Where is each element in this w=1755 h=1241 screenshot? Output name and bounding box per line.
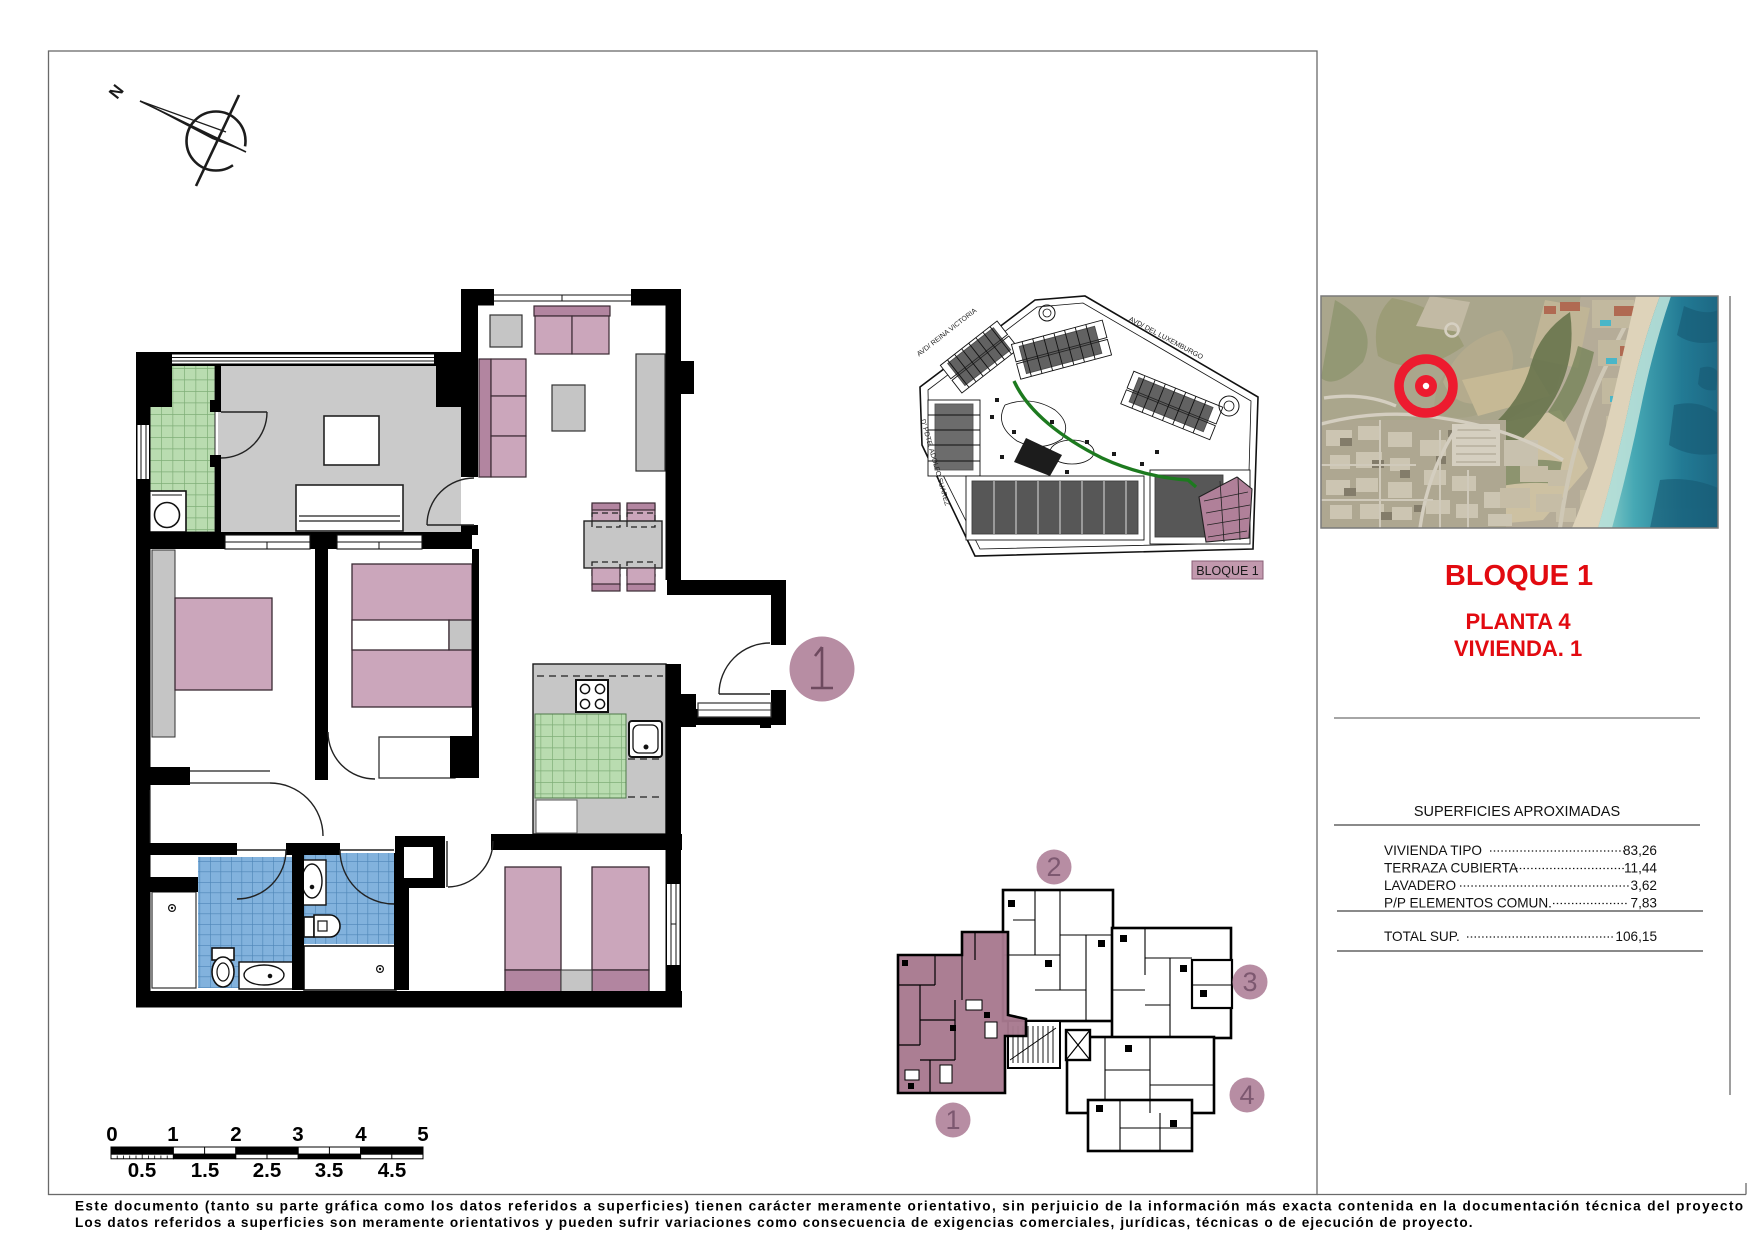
svg-text:11,44: 11,44 — [1624, 861, 1657, 876]
svg-text:TERRAZA CUBIERTA: TERRAZA CUBIERTA — [1384, 861, 1519, 876]
svg-text:7,83: 7,83 — [1631, 896, 1657, 911]
svg-text:0: 0 — [106, 1123, 117, 1146]
svg-text:83,26: 83,26 — [1623, 843, 1657, 858]
svg-text:1: 1 — [167, 1123, 178, 1146]
svg-text:LAVADERO: LAVADERO — [1384, 878, 1456, 893]
svg-text:SUPERFICIES APROXIMADAS: SUPERFICIES APROXIMADAS — [1414, 804, 1620, 820]
svg-text:3.5: 3.5 — [315, 1159, 344, 1182]
svg-text:0.5: 0.5 — [128, 1159, 157, 1182]
svg-text:4.5: 4.5 — [378, 1159, 407, 1182]
svg-text:BLOQUE 1: BLOQUE 1 — [1196, 564, 1259, 578]
svg-text:3: 3 — [292, 1123, 303, 1146]
svg-text:N: N — [105, 81, 128, 102]
svg-text:5: 5 — [417, 1123, 428, 1146]
svg-text:BLOQUE 1: BLOQUE 1 — [1445, 560, 1593, 592]
svg-text:PLANTA 4: PLANTA 4 — [1465, 609, 1571, 634]
svg-text:2: 2 — [1046, 852, 1061, 882]
svg-text:106,15: 106,15 — [1615, 929, 1657, 944]
svg-text:P/P ELEMENTOS COMUN.: P/P ELEMENTOS COMUN. — [1384, 896, 1552, 911]
svg-text:VIVIENDA. 1: VIVIENDA. 1 — [1454, 636, 1582, 661]
svg-text:Los datos referidos a superfic: Los datos referidos a superficies son me… — [75, 1215, 1474, 1230]
svg-text:4: 4 — [355, 1123, 367, 1146]
svg-text:1.5: 1.5 — [191, 1159, 220, 1182]
svg-text:2.5: 2.5 — [253, 1159, 282, 1182]
svg-text:4: 4 — [1239, 1080, 1254, 1110]
svg-text:Este documento (tanto su parte: Este documento (tanto su parte gráfica c… — [75, 1199, 1744, 1214]
svg-text:3,62: 3,62 — [1631, 878, 1657, 893]
svg-text:2: 2 — [230, 1123, 241, 1146]
svg-text:TOTAL SUP.: TOTAL SUP. — [1384, 929, 1460, 944]
svg-text:1: 1 — [945, 1105, 960, 1135]
svg-text:3: 3 — [1242, 967, 1257, 997]
svg-text:VIVIENDA TIPO: VIVIENDA TIPO — [1384, 843, 1482, 858]
